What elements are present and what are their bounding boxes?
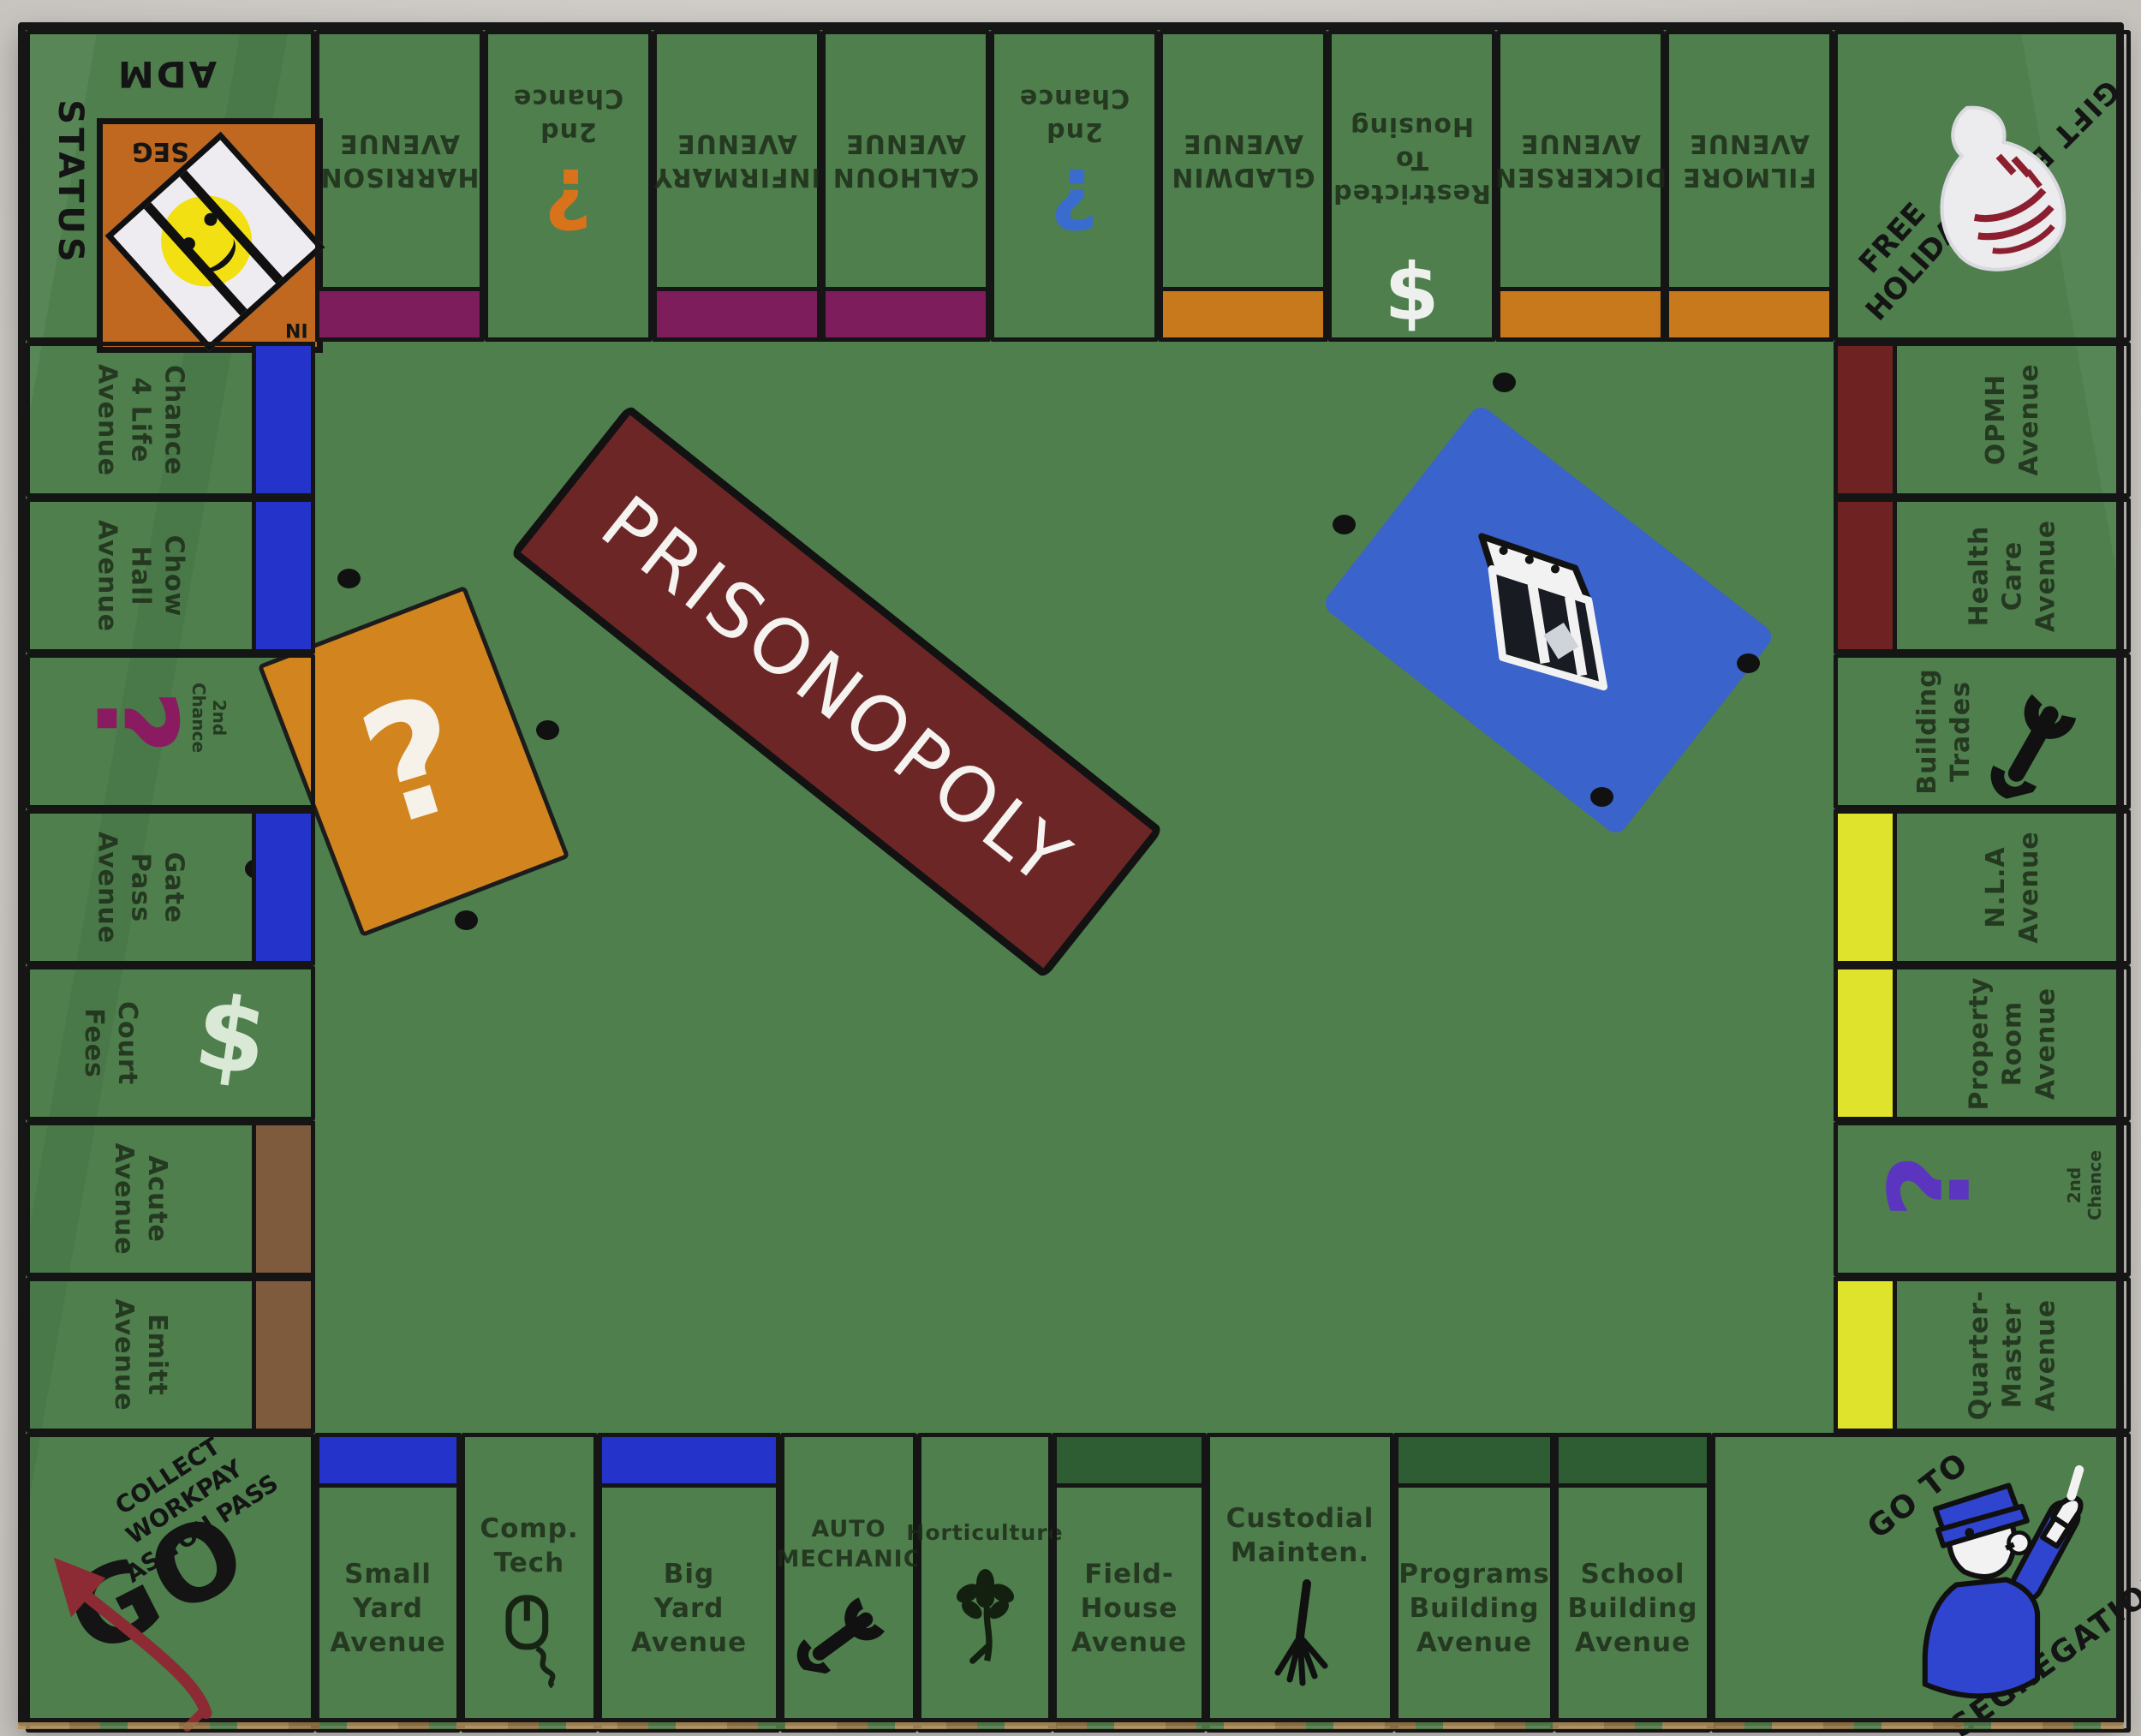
color-bar-blue [252,809,315,965]
space-chow-hall-avenue: Chow Hall Avenue [26,498,315,653]
question-mark-icon: ? [545,157,593,239]
computer-mouse-icon [495,1589,564,1688]
rake-icon [1257,1578,1343,1690]
space-label: AUTO MECHANIC [776,1514,921,1574]
color-bar-orange [1159,287,1327,342]
space-label: Court Fees [77,968,144,1119]
space-acute-avenue: Acute Avenue [26,1121,315,1277]
space-label: Big Yard Avenue [631,1557,747,1661]
space-harrison-avenue: HARRISON AVENUE [315,30,484,342]
space-label: 2nd Chance [513,81,623,148]
question-mark-icon: ? [1875,1154,1986,1218]
color-bar-yellow [1834,965,1897,1121]
flower-icon [940,1556,1030,1672]
space-restricted-to-housing: Restricted To Housing $ [1327,30,1496,342]
policeman-icon [1878,1459,2092,1708]
space-label: INFIRMARY AVENUE [653,127,820,194]
space-school-building-avenue: School Building Avenue [1554,1433,1711,1733]
space-label: Programs Building Avenue [1399,1557,1549,1661]
color-bar-darkgreen [1053,1433,1206,1488]
space-health-care-avenue: Health Care Avenue [1834,498,2131,653]
title-banner: PRISONOPOLY [510,404,1163,979]
space-small-yard-avenue: Small Yard Avenue [315,1433,461,1733]
color-bar-purple [821,287,990,342]
space-gate-pass-avenue: Gate Pass Avenue [26,809,315,965]
space-2nd-chance-top-2: ? 2nd Chance [990,30,1159,342]
color-bar-orange [1496,287,1665,342]
space-label: Emitt Avenue [107,1280,174,1430]
dollar-sign-icon: $ [189,981,273,1090]
corner-free-holiday-gift-bag: FREE HOLIDAY GIFT BAG [1834,30,2131,342]
corner-go-to-segregation: GO TO SEGREGATION [1711,1433,2131,1733]
space-label: Small Yard Avenue [330,1557,445,1661]
space-quarter-master-avenue: Quarter- Master Avenue [1834,1277,2131,1433]
space-big-yard-avenue: Big Yard Avenue [598,1433,780,1733]
color-bar-brown [252,1277,315,1433]
space-label: Gate Pass Avenue [91,812,191,963]
adm-label: ADM [116,53,217,95]
color-bar-darkred [1834,342,1897,498]
space-label: Property Room Avenue [1962,968,2062,1119]
space-label: Horticulture [906,1519,1063,1548]
space-court-fees: Court Fees $ [26,965,315,1121]
space-gladwin-avenue: GLADWIN AVENUE [1159,30,1327,342]
community-chest-card-space [1321,403,1775,837]
space-dickersen-avenue: DICKERSEN AVENUE [1496,30,1665,342]
corner-dot [1737,653,1760,673]
color-bar-blue [252,342,315,498]
space-emitt-avenue: Emitt Avenue [26,1277,315,1433]
space-label: Health Care Avenue [1962,500,2062,651]
color-bar-yellow [1834,809,1897,965]
space-2nd-chance-top-1: ? 2nd Chance [484,30,653,342]
space-2nd-chance-right: ? 2nd Chance [1834,1121,2131,1277]
space-label: HARRISON AVENUE [320,127,480,194]
space-label: Building Trades [1911,656,1977,807]
space-comp-tech: Comp. Tech [461,1433,598,1733]
space-label: Chance 4 Life Avenue [91,344,191,495]
space-label: Chow Hall Avenue [91,500,191,651]
space-label: OPMH Avenue [1979,344,2046,495]
color-bar-darkgreen [1394,1433,1554,1488]
corner-dot [1590,787,1613,807]
color-bar-brown [252,1121,315,1277]
space-label: Acute Avenue [107,1124,174,1274]
corner-go: COLLECT WORKPAY AS YOU PASS GO [26,1433,315,1733]
space-label: 2nd Chance [188,683,230,753]
space-chance-4-life-avenue: Chance 4 Life Avenue [26,342,315,498]
space-filmore-avenue: FILMORE AVENUE [1665,30,1834,342]
space-programs-building-avenue: Programs Building Avenue [1394,1433,1554,1733]
corner-adm-seg-status: ADM STATUS SEG IN [26,30,315,342]
space-field-house-avenue: Field- House Avenue [1053,1433,1206,1733]
color-bar-darkgreen [1554,1433,1711,1488]
space-property-room-avenue: Property Room Avenue [1834,965,2131,1121]
photo-background: PRISONOPOLY ? ADM STATUS SEG [0,0,2141,1736]
color-bar-darkred [1834,498,1897,653]
space-label: Restricted To Housing [1333,110,1491,211]
dollar-sign-icon: $ [1384,254,1439,332]
corner-dot [536,720,559,740]
space-custodial-maintenance: Custodial Mainten. [1206,1433,1394,1733]
corner-dot [1333,515,1356,534]
space-2nd-chance-left: ? 2nd Chance [26,653,315,809]
color-bar-purple [653,287,821,342]
space-label: Field- House Avenue [1071,1557,1187,1661]
corner-dot [455,910,478,930]
in-label: IN [285,319,308,340]
space-auto-mechanic: AUTO MECHANIC [780,1433,917,1733]
color-bar-blue [252,498,315,653]
question-mark-icon: ? [81,689,192,754]
space-infirmary-avenue: INFIRMARY AVENUE [653,30,821,342]
space-label: School Building Avenue [1567,1557,1697,1661]
space-label: FILMORE AVENUE [1682,127,1816,194]
color-bar-blue [598,1433,780,1488]
space-horticulture: Horticulture [917,1433,1053,1733]
corner-dot [337,569,361,588]
space-label: N.L.A Avenue [1979,812,2046,963]
space-label: DICKERSEN AVENUE [1494,127,1667,194]
adm-seg-square: SEG IN [97,118,323,353]
space-label: Custodial Mainten. [1226,1501,1375,1571]
color-bar-orange [1665,287,1834,342]
space-building-trades: Building Trades [1834,653,2131,809]
board-title: PRISONOPOLY [585,479,1088,904]
space-label: CALHOUN AVENUE [832,127,979,194]
question-mark-icon: ? [1051,157,1099,239]
space-label: Comp. Tech [480,1512,578,1581]
treasure-chest-icon [1397,477,1699,763]
color-bar-purple [315,287,484,342]
prisonopoly-board: PRISONOPOLY ? ADM STATUS SEG [18,22,2124,1726]
question-mark-icon: ? [343,659,485,863]
seg-label: SEG [132,136,189,166]
space-opmh-avenue: OPMH Avenue [1834,342,2131,498]
color-bar-yellow [1834,1277,1897,1433]
corner-dot [1493,373,1516,392]
space-label: Quarter- Master Avenue [1962,1280,2062,1430]
space-label: GLADWIN AVENUE [1171,127,1315,194]
go-arrow-icon [33,1545,222,1733]
color-bar-blue [315,1433,461,1488]
space-label: 2nd Chance [2064,1150,2105,1220]
space-calhoun-avenue: CALHOUN AVENUE [821,30,990,342]
wrench-icon [794,1575,903,1684]
status-label: STATUS [51,92,90,272]
space-nla-avenue: N.L.A Avenue [1834,809,2131,965]
space-label: 2nd Chance [1019,81,1130,148]
